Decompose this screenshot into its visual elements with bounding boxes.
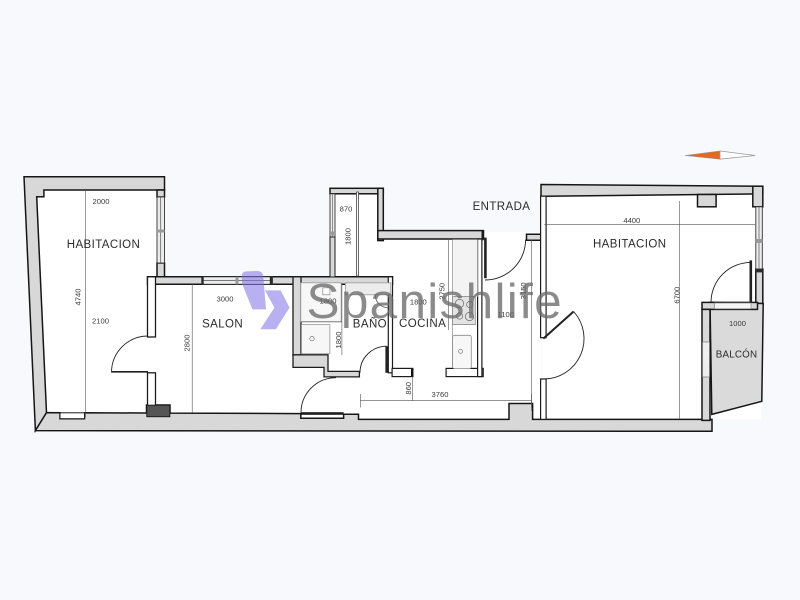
svg-text:HABITACION: HABITACION bbox=[67, 239, 140, 251]
svg-text:4400: 4400 bbox=[623, 216, 640, 225]
svg-text:1800: 1800 bbox=[344, 228, 353, 245]
svg-text:4740: 4740 bbox=[74, 289, 83, 306]
svg-text:Spanishlife: Spanishlife bbox=[307, 274, 563, 329]
svg-text:2000: 2000 bbox=[93, 197, 110, 206]
svg-text:BALCÓN: BALCÓN bbox=[716, 350, 758, 361]
svg-text:3760: 3760 bbox=[432, 390, 449, 399]
svg-text:870: 870 bbox=[340, 205, 353, 214]
svg-text:860: 860 bbox=[404, 382, 413, 395]
svg-text:HABITACION: HABITACION bbox=[593, 239, 666, 251]
svg-text:3000: 3000 bbox=[217, 295, 234, 304]
svg-text:SALON: SALON bbox=[202, 319, 243, 331]
svg-text:ENTRADA: ENTRADA bbox=[473, 201, 531, 213]
svg-text:6700: 6700 bbox=[672, 287, 681, 304]
svg-text:1800: 1800 bbox=[334, 332, 343, 349]
svg-text:2100: 2100 bbox=[92, 317, 109, 326]
svg-text:2800: 2800 bbox=[183, 335, 192, 352]
svg-text:1000: 1000 bbox=[729, 319, 746, 328]
